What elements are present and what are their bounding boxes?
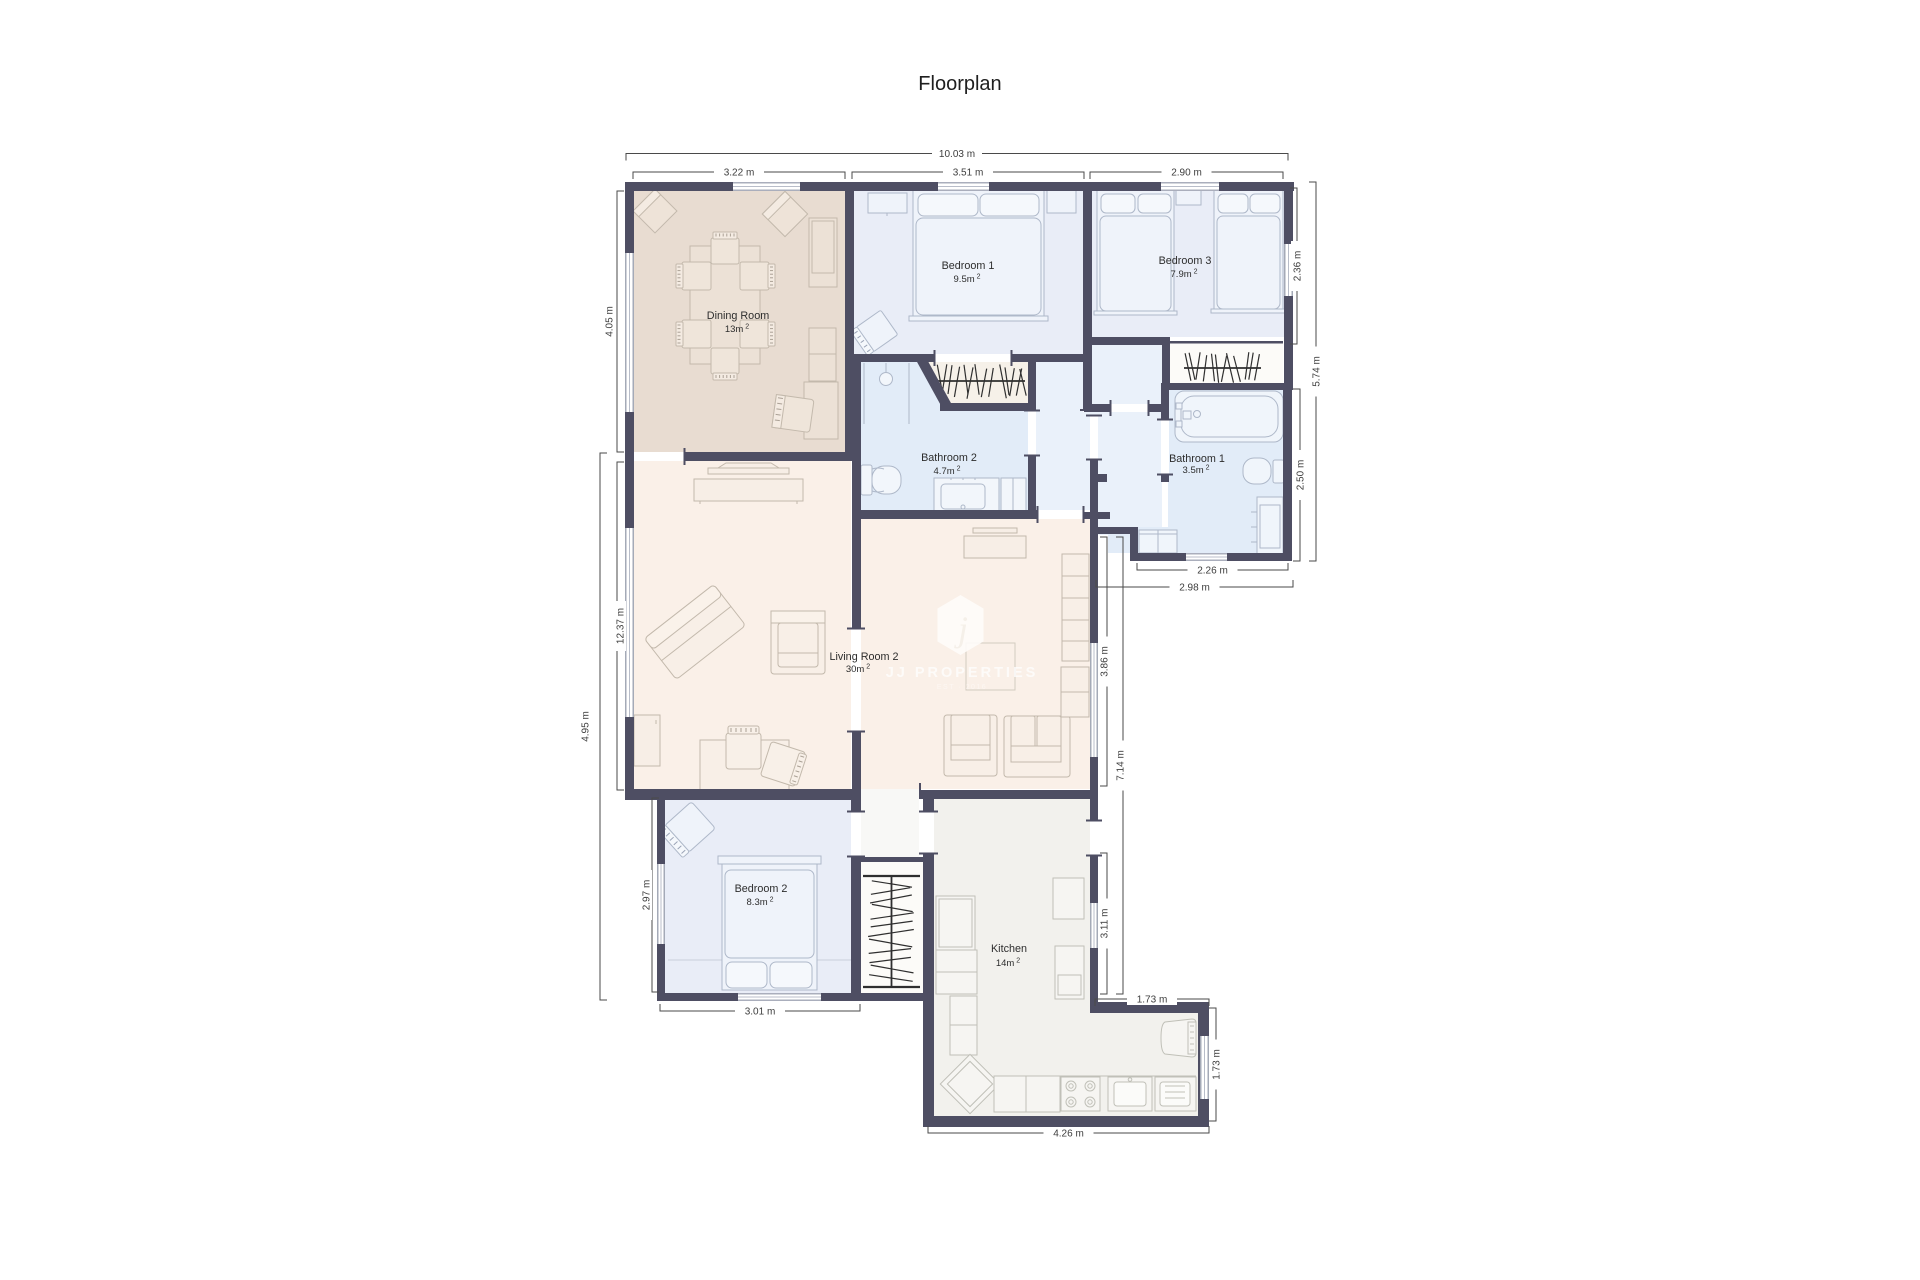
svg-text:Floorplan: Floorplan — [918, 73, 1001, 95]
svg-text:4.95 m: 4.95 m — [581, 711, 592, 742]
svg-text:10.03 m: 10.03 m — [939, 149, 975, 160]
svg-text:3.86 m: 3.86 m — [1100, 646, 1111, 677]
svg-text:Dining Room: Dining Room — [707, 310, 769, 322]
svg-text:2.90 m: 2.90 m — [1171, 168, 1202, 179]
svg-text:2.36 m: 2.36 m — [1293, 251, 1304, 282]
svg-text:Kitchen: Kitchen — [991, 943, 1027, 955]
svg-text:5.74 m: 5.74 m — [1312, 356, 1323, 387]
svg-text:Bedroom 2: Bedroom 2 — [735, 883, 788, 895]
svg-text:Bathroom 1: Bathroom 1 — [1169, 453, 1225, 465]
svg-text:2.50 m: 2.50 m — [1296, 460, 1307, 491]
svg-text:4.26 m: 4.26 m — [1053, 1129, 1084, 1140]
svg-text:3.01 m: 3.01 m — [745, 1007, 776, 1018]
svg-text:Bedroom 1: Bedroom 1 — [942, 260, 995, 272]
svg-text:3.51 m: 3.51 m — [953, 168, 984, 179]
svg-text:4.05 m: 4.05 m — [605, 306, 616, 337]
svg-text:Bathroom 2: Bathroom 2 — [921, 452, 977, 464]
svg-text:7.14 m: 7.14 m — [1116, 750, 1127, 781]
svg-text:3.11 m: 3.11 m — [1100, 909, 1111, 939]
svg-text:JJ PROPERTIES: JJ PROPERTIES — [886, 665, 1039, 681]
svg-text:2.26 m: 2.26 m — [1197, 566, 1228, 577]
svg-text:1.73 m: 1.73 m — [1137, 995, 1168, 1006]
svg-text:Living Room 2: Living Room 2 — [829, 651, 898, 663]
svg-text:3.22 m: 3.22 m — [724, 168, 755, 179]
svg-text:12.37 m: 12.37 m — [616, 608, 627, 644]
svg-text:2.97 m: 2.97 m — [642, 880, 653, 911]
svg-text:2.98 m: 2.98 m — [1179, 583, 1210, 594]
svg-text:1.73 m: 1.73 m — [1212, 1049, 1223, 1080]
svg-text:EST · 2016: EST · 2016 — [937, 684, 987, 691]
svg-text:Bedroom 3: Bedroom 3 — [1159, 255, 1212, 267]
